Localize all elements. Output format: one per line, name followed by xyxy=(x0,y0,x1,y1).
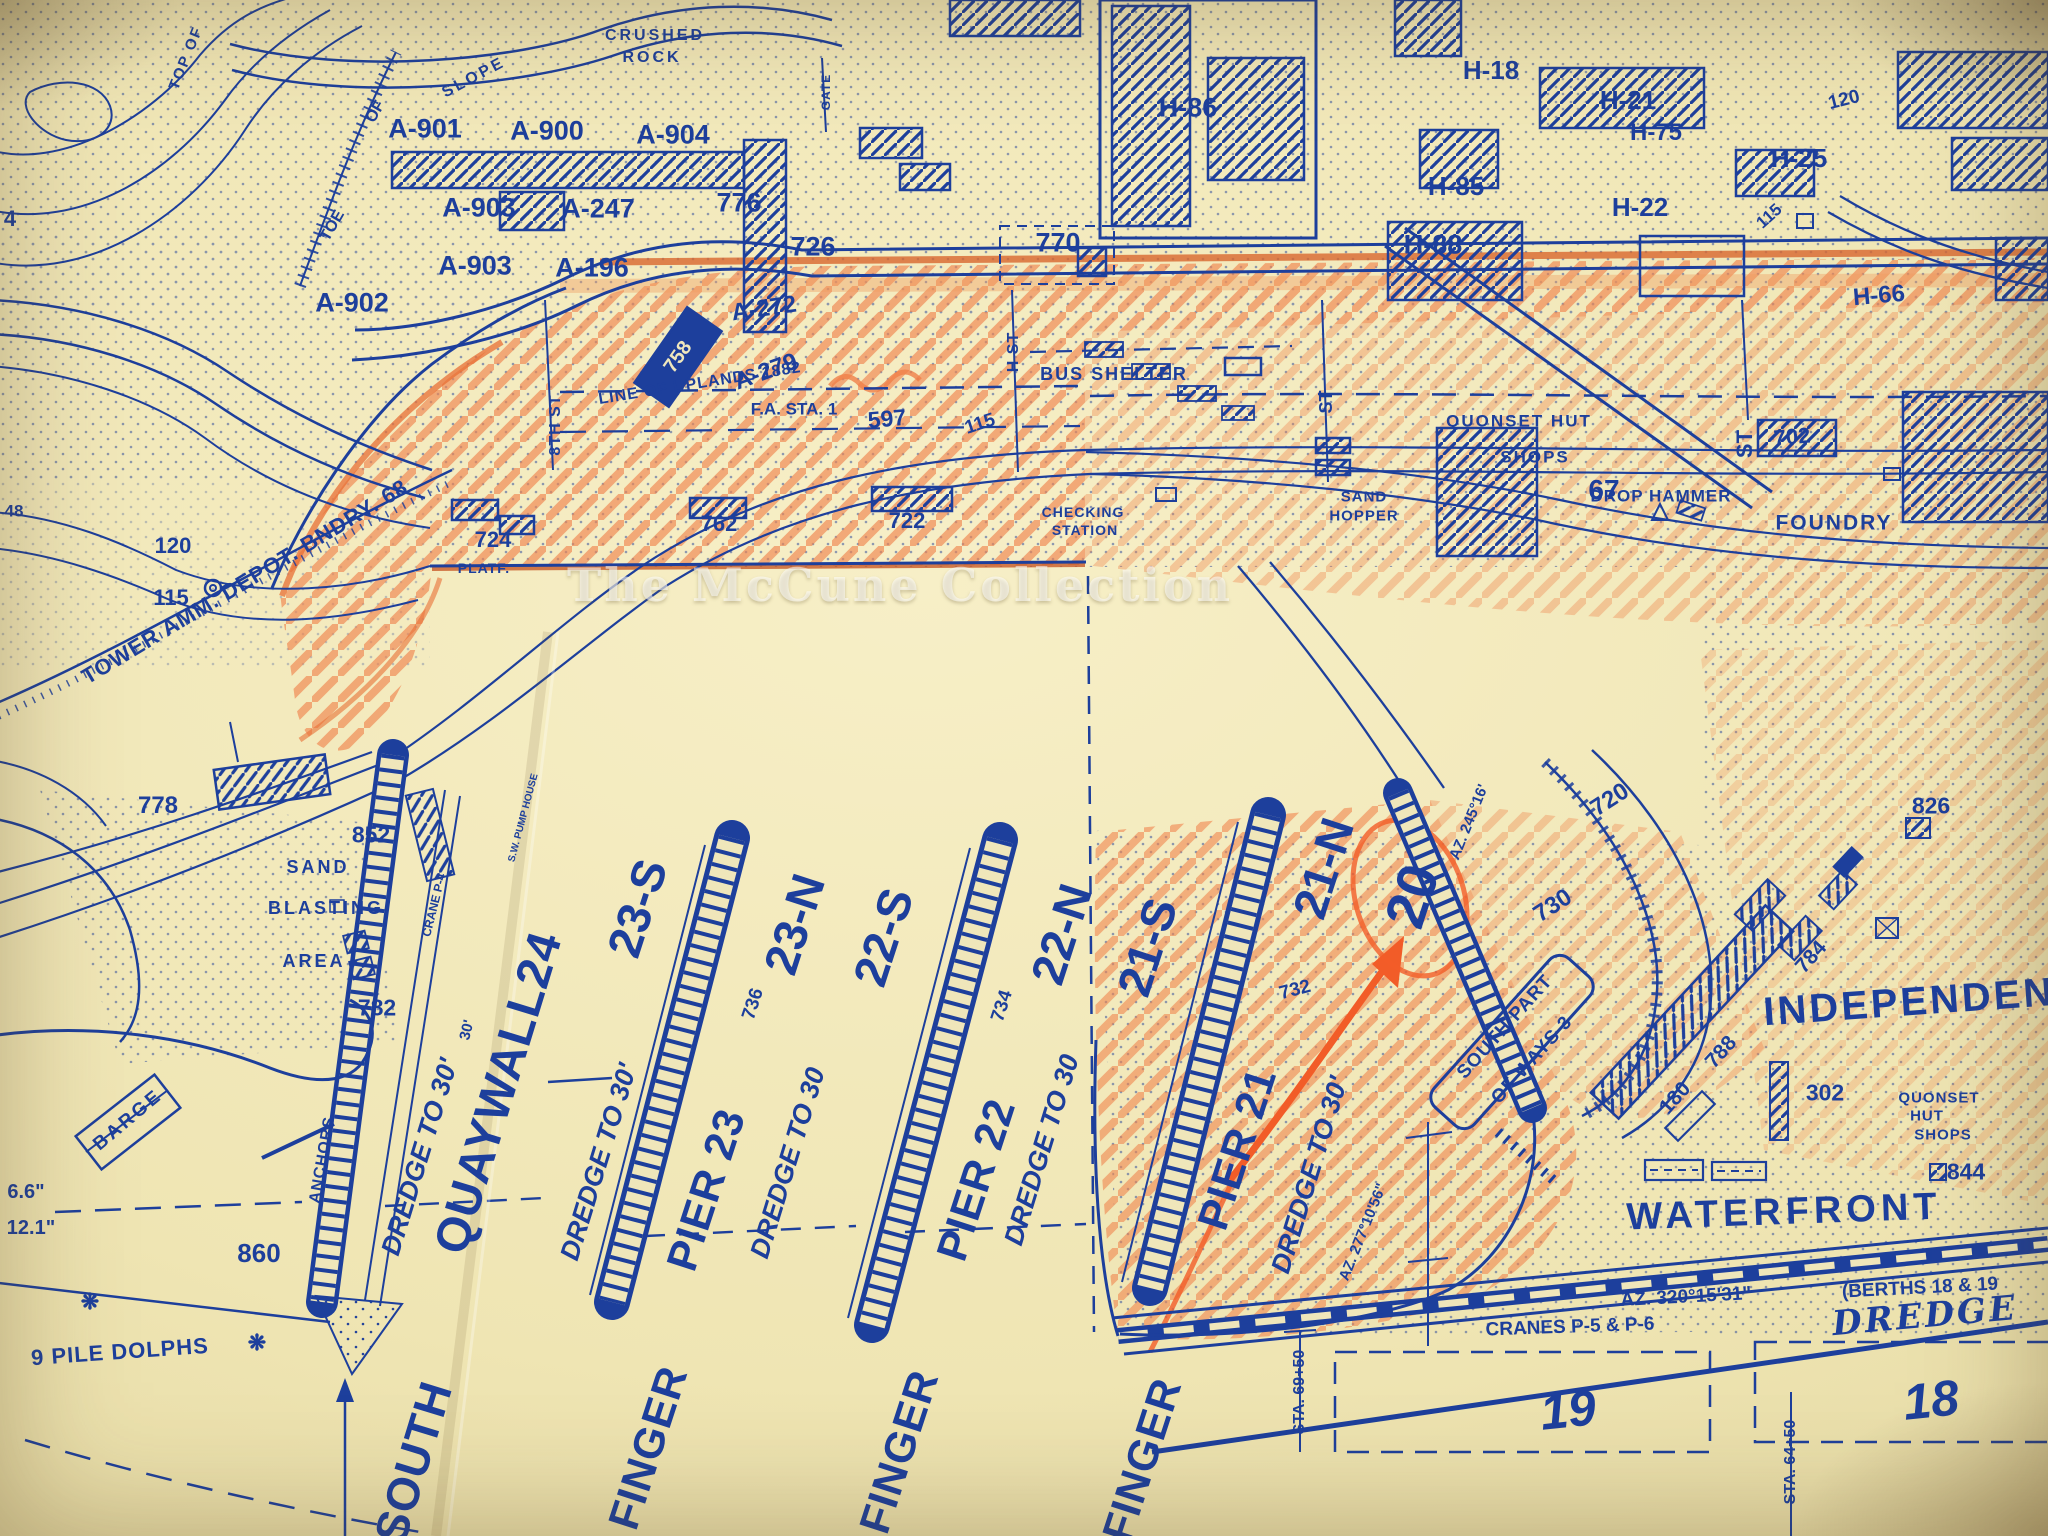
map-label-860: 860 xyxy=(237,1240,280,1266)
map-label-blasting: BLASTING xyxy=(268,899,384,917)
map-label-h-st: H ST xyxy=(1006,332,1022,372)
map-label-platf: PLATF. xyxy=(458,561,510,575)
map-label-18: 18 xyxy=(1901,1372,1962,1428)
map-label-sand: SAND xyxy=(1341,490,1388,505)
map-label-12-1: 12.1" xyxy=(7,1218,55,1238)
map-label-302: 302 xyxy=(1806,1082,1844,1105)
map-label-a-903: A-903 xyxy=(438,253,512,280)
map-label-a-900: A-900 xyxy=(510,118,584,145)
map-label-pile-dolphin-marker: ❋ xyxy=(81,1291,99,1313)
map-label-722: 722 xyxy=(889,510,926,532)
map-label-778: 778 xyxy=(138,794,178,818)
map-label-782: 782 xyxy=(358,997,396,1020)
map-label-h-25: H-25 xyxy=(1771,145,1827,171)
map-label-h-22: H-22 xyxy=(1612,194,1668,220)
blueprint-map: TOP OFTOEOFSLOPECRUSHEDROCKGATEA-901A-90… xyxy=(0,0,2048,1536)
map-label-waterfront: WATERFRONT xyxy=(1626,1188,1942,1237)
map-label-a-903: A-903 xyxy=(442,195,516,222)
map-label-gate: GATE xyxy=(820,74,832,110)
map-label-foundry: FOUNDRY xyxy=(1775,513,1892,534)
map-label-h-66: H-66 xyxy=(1852,282,1906,310)
map-label-a-904: A-904 xyxy=(636,122,710,149)
map-label-770: 770 xyxy=(1035,230,1080,257)
map-label-a-196: A-196 xyxy=(555,255,629,282)
map-label-shops: SHOPS xyxy=(1500,449,1570,466)
map-label-726: 726 xyxy=(790,234,835,261)
map-label-597: 597 xyxy=(867,406,907,432)
map-label-sta-69-50: STA. 69+50 xyxy=(1292,1350,1308,1435)
map-label-h-88: H-88 xyxy=(1404,232,1463,259)
map-label-852: 852 xyxy=(352,824,390,847)
map-label-8th-st: 8TH ST xyxy=(548,394,564,455)
map-label-67: 67 xyxy=(1588,476,1619,504)
map-label-st: ST xyxy=(1734,430,1756,458)
map-label-f-a-sta-1: F.A. STA. 1 xyxy=(751,401,838,418)
map-label-pile-dolphin-marker: ❋ xyxy=(248,1332,266,1354)
map-label-762: 762 xyxy=(701,513,738,535)
map-label-sand: SAND xyxy=(286,858,349,876)
map-label-bus-shelter: BUS SHELTER xyxy=(1040,365,1188,383)
map-label-48: 48 xyxy=(5,503,24,520)
map-label-checking: CHECKING xyxy=(1042,505,1125,519)
map-label-st: ST xyxy=(1317,390,1335,413)
map-label-a-902: A-902 xyxy=(315,290,389,317)
map-label-quonset: QUONSET xyxy=(1898,1091,1979,1106)
map-label-19: 19 xyxy=(1538,1382,1599,1438)
map-linework xyxy=(0,0,2048,1536)
map-label-776: 776 xyxy=(716,190,761,217)
map-label-844: 844 xyxy=(1947,1161,1985,1184)
map-label-4: 4 xyxy=(4,208,16,230)
map-label-826: 826 xyxy=(1912,795,1950,818)
map-label-6-6: 6.6" xyxy=(7,1182,44,1202)
map-label-h-86: H-86 xyxy=(1159,95,1218,122)
map-label-h-85: H-85 xyxy=(1428,173,1484,199)
map-label-a-901: A-901 xyxy=(388,116,462,143)
watermark: The McCune Collection xyxy=(567,558,1233,612)
map-label-120: 120 xyxy=(155,535,192,557)
map-label-h-75: H-75 xyxy=(1630,121,1682,145)
map-label-crushed: CRUSHED xyxy=(605,28,705,44)
map-label-702: 702 xyxy=(1773,424,1811,449)
map-label-h-18: H-18 xyxy=(1463,57,1519,83)
map-label-sta-64-50: STA. 64+50 xyxy=(1783,1420,1799,1505)
map-label-hut: HUT xyxy=(1910,1109,1944,1124)
map-label-shops: SHOPS xyxy=(1914,1128,1972,1143)
map-label-station: STATION xyxy=(1052,523,1118,537)
map-label-quonset-hut: QUONSET HUT xyxy=(1446,413,1592,430)
map-label-area: AREA xyxy=(282,952,345,970)
map-label-rock: ROCK xyxy=(622,50,681,66)
map-label-a-247: A-247 xyxy=(561,196,635,223)
map-label-hopper: HOPPER xyxy=(1329,509,1398,524)
map-label-h-21: H-21 xyxy=(1600,87,1656,113)
map-label-724: 724 xyxy=(475,529,512,551)
